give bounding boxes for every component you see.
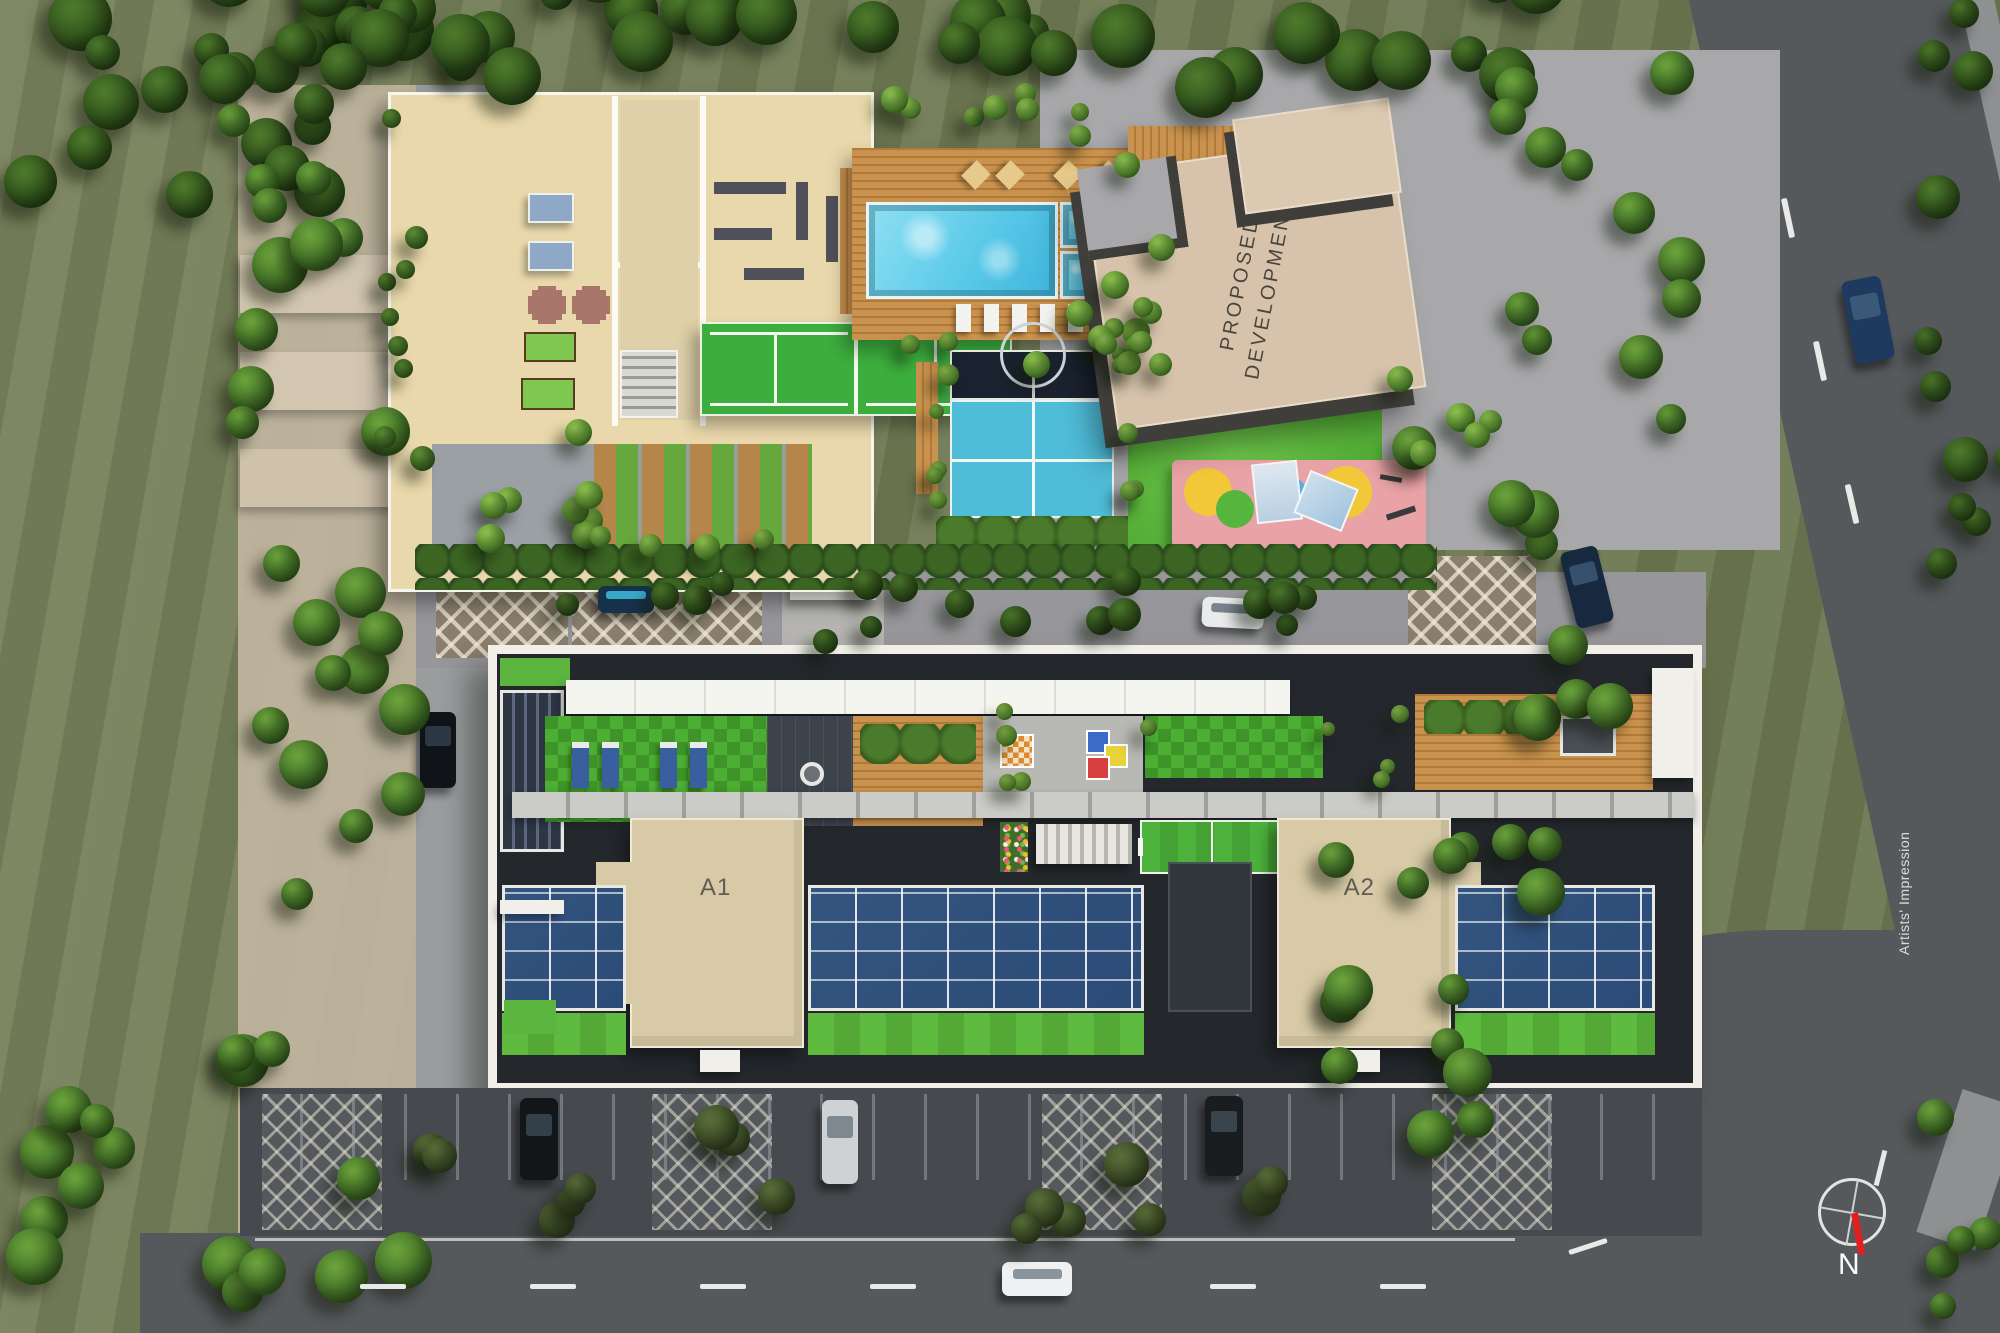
rooftop-lounger	[690, 742, 707, 788]
stall-line	[300, 1094, 303, 1180]
workspace-desk	[826, 196, 838, 262]
rooftop-planter-hedge	[1424, 700, 1544, 734]
lane-marking	[700, 1284, 746, 1289]
rooftop-lounger	[602, 742, 619, 788]
car	[420, 712, 456, 788]
stall-line	[664, 1094, 667, 1180]
tower-a1-label: A1	[700, 874, 731, 902]
stall-line	[1028, 1094, 1031, 1180]
stall-line	[612, 1094, 615, 1180]
stall-line	[1444, 1094, 1447, 1180]
dining-table-set	[576, 290, 606, 320]
stall-line	[1184, 1094, 1187, 1180]
lane-marking	[360, 1284, 406, 1289]
rooftop-round-table	[800, 762, 824, 786]
stall-line	[872, 1094, 875, 1180]
rooftop-checker-lawn	[1145, 716, 1323, 778]
lane-marking	[1380, 1284, 1426, 1289]
stall-line	[924, 1094, 927, 1180]
rooftop-lawn	[500, 658, 570, 686]
roof-vent-box	[1340, 1050, 1380, 1072]
rooftop-lounger	[572, 742, 589, 788]
parking-stall-lines	[240, 1088, 1702, 1188]
stall-line	[508, 1094, 511, 1180]
car	[520, 1098, 558, 1180]
roof-west-structure	[500, 900, 564, 914]
lane-marking	[530, 1284, 576, 1289]
roof-core-detail	[1168, 862, 1252, 1012]
car	[1002, 1262, 1072, 1296]
stall-line	[1548, 1094, 1551, 1180]
pickleball-court	[950, 400, 1114, 518]
stall-line	[716, 1094, 719, 1180]
artists-impression-note: Artists' Impression	[1896, 832, 1912, 955]
dining-table-set	[532, 290, 562, 320]
lane-marking	[870, 1284, 916, 1289]
table-tennis-table	[528, 241, 574, 271]
swing	[1380, 474, 1403, 483]
workspace-desk	[714, 228, 772, 240]
kids-play-area	[1172, 460, 1426, 548]
table-tennis-table	[528, 193, 574, 223]
car	[598, 586, 654, 613]
workspace-desk	[796, 182, 808, 240]
stall-line	[560, 1094, 563, 1180]
staircase	[620, 350, 678, 418]
play-structure	[1251, 460, 1303, 524]
bottom-road	[140, 1233, 1740, 1333]
clubhouse-wall	[612, 96, 618, 426]
hopscotch-mat	[1000, 734, 1034, 768]
rooftop-planter-hedge	[860, 724, 976, 764]
shaded-seating	[1036, 824, 1132, 864]
stall-line	[1392, 1094, 1395, 1180]
seesaw	[1386, 506, 1416, 521]
compass-north-label: N	[1838, 1248, 1860, 1282]
stall-line	[352, 1094, 355, 1180]
solar-panel-array	[1455, 885, 1655, 1011]
compass	[1818, 1178, 1886, 1246]
site-plan-rendering: PROPOSED DEVELOPMENT	[0, 0, 2000, 1333]
stall-line	[1132, 1094, 1135, 1180]
rooftop-walkway	[512, 792, 1694, 818]
roof-lawn-strip	[808, 1013, 1144, 1055]
rooftop-seating	[1560, 716, 1616, 756]
proposed-development-label: PROPOSED DEVELOPMENT	[1208, 190, 1302, 382]
tower-a1-roof: A1	[630, 818, 804, 1048]
lane-marking	[1210, 1284, 1256, 1289]
car	[1201, 596, 1264, 629]
workspace-desk	[714, 182, 786, 194]
pool-lounger	[984, 304, 999, 332]
roof-lawn-patch	[504, 1000, 556, 1034]
pool-lounger	[1068, 304, 1083, 332]
stall-line	[456, 1094, 459, 1180]
rooftop-lounger	[660, 742, 677, 788]
flower-bed	[1000, 822, 1028, 872]
stall-line	[404, 1094, 407, 1180]
billiards-table	[524, 332, 576, 362]
billiards-table	[521, 378, 575, 410]
tower-a2-roof: A2	[1277, 818, 1451, 1048]
car	[1205, 1096, 1243, 1176]
stall-line	[976, 1094, 979, 1180]
roof-lawn-strip	[1455, 1013, 1655, 1055]
tower-a2-label: A2	[1344, 874, 1375, 902]
stall-line	[1340, 1094, 1343, 1180]
roof-notch	[1077, 156, 1189, 261]
garden-paving	[432, 444, 594, 558]
bottom-road-edge-line	[255, 1238, 1515, 1241]
stall-line	[1600, 1094, 1603, 1180]
stall-line	[1288, 1094, 1291, 1180]
rooftop-canopy	[566, 680, 1290, 714]
stall-line	[1652, 1094, 1655, 1180]
garden-striped-deck	[594, 444, 812, 558]
workspace-desk	[744, 268, 804, 280]
podium-hedge	[415, 544, 1437, 590]
roof-vent-box	[700, 1050, 740, 1072]
basketball-half-court	[950, 350, 1114, 400]
stall-line	[768, 1094, 771, 1180]
swimming-pool	[866, 202, 1058, 299]
stall-line	[1080, 1094, 1083, 1180]
rooftop-structure	[1652, 668, 1694, 778]
courtside-bench	[916, 362, 938, 494]
game-board	[1086, 756, 1110, 780]
stall-line	[1496, 1094, 1499, 1180]
car	[822, 1100, 858, 1184]
pool-lounger	[956, 304, 971, 332]
solar-panel-array	[808, 885, 1144, 1011]
